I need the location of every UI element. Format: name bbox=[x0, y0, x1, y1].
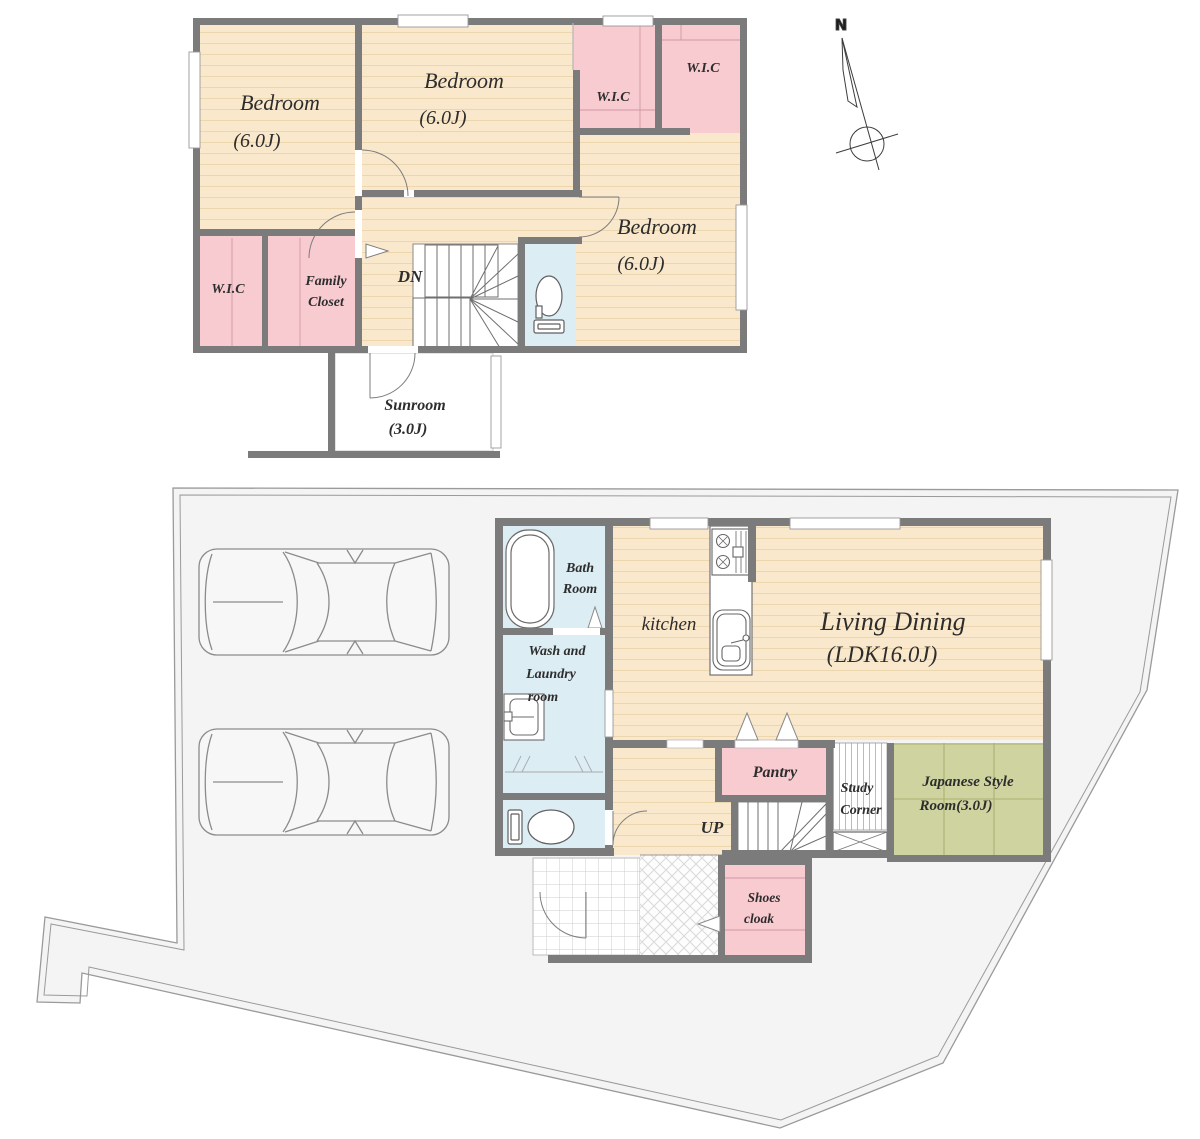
shoes-cloak-label-2: cloak bbox=[744, 911, 774, 926]
compass-label: N bbox=[835, 16, 848, 34]
study-corner-label-2: Corner bbox=[840, 803, 882, 818]
hall-floor bbox=[613, 748, 731, 855]
toilet-icon bbox=[534, 276, 564, 333]
wic-sw-label: W.I.C bbox=[211, 282, 245, 297]
japanese-room-label-2: Room(3.0J) bbox=[919, 798, 993, 814]
living-dining-size: (LDK16.0J) bbox=[827, 642, 938, 667]
bath-room-label-1: Bath bbox=[565, 561, 594, 576]
japanese-room-label-1: Japanese Style bbox=[921, 774, 1014, 790]
bedroom-nw-label: Bedroom bbox=[240, 90, 320, 115]
living-dining-label: Living Dining bbox=[819, 607, 965, 636]
bedroom-n-label: Bedroom bbox=[424, 68, 504, 93]
car-icon bbox=[199, 729, 449, 835]
laundry-label-2: Laundry bbox=[525, 667, 577, 682]
compass-north-icon: N bbox=[835, 16, 898, 170]
floor-plan-page: N bbox=[0, 0, 1200, 1139]
study-corner-label-1: Study bbox=[841, 781, 874, 796]
wic-ne1-label: W.I.C bbox=[596, 90, 630, 105]
wic-ne2-label: W.I.C bbox=[686, 61, 720, 76]
laundry-label-3: room bbox=[528, 690, 558, 705]
family-closet-label-1: Family bbox=[304, 274, 347, 289]
pantry-label: Pantry bbox=[752, 764, 798, 781]
bedroom-n-size: (6.0J) bbox=[419, 107, 467, 129]
kitchen-sink-icon bbox=[713, 610, 750, 670]
kitchen-counter bbox=[710, 526, 752, 675]
stove-icon bbox=[712, 529, 750, 575]
stairs-down-label: DN bbox=[397, 267, 423, 286]
bedroom-e-label: Bedroom bbox=[617, 214, 697, 239]
floor-plan-drawing: N bbox=[0, 0, 1200, 1139]
bedroom-nw-size: (6.0J) bbox=[233, 130, 281, 152]
car-icon bbox=[199, 549, 449, 655]
sunroom-label: Sunroom bbox=[384, 397, 445, 414]
shoes-cloak-floor bbox=[725, 865, 805, 955]
toilet-icon bbox=[508, 810, 574, 844]
shoes-cloak-label-1: Shoes bbox=[747, 890, 780, 905]
bath-room-label-2: Room bbox=[562, 582, 597, 597]
laundry-label-1: Wash and bbox=[529, 644, 587, 659]
bathtub-icon bbox=[506, 530, 554, 628]
genkan-floor bbox=[640, 855, 722, 955]
sunroom-size: (3.0J) bbox=[389, 421, 428, 438]
bedroom-e-size: (6.0J) bbox=[617, 253, 665, 275]
staircase-up bbox=[738, 802, 826, 852]
study-void-box bbox=[833, 832, 887, 852]
staircase-down bbox=[413, 244, 518, 348]
family-closet-label-2: Closet bbox=[308, 295, 345, 310]
stairs-up-label: UP bbox=[701, 818, 724, 837]
kitchen-label: kitchen bbox=[642, 614, 697, 635]
